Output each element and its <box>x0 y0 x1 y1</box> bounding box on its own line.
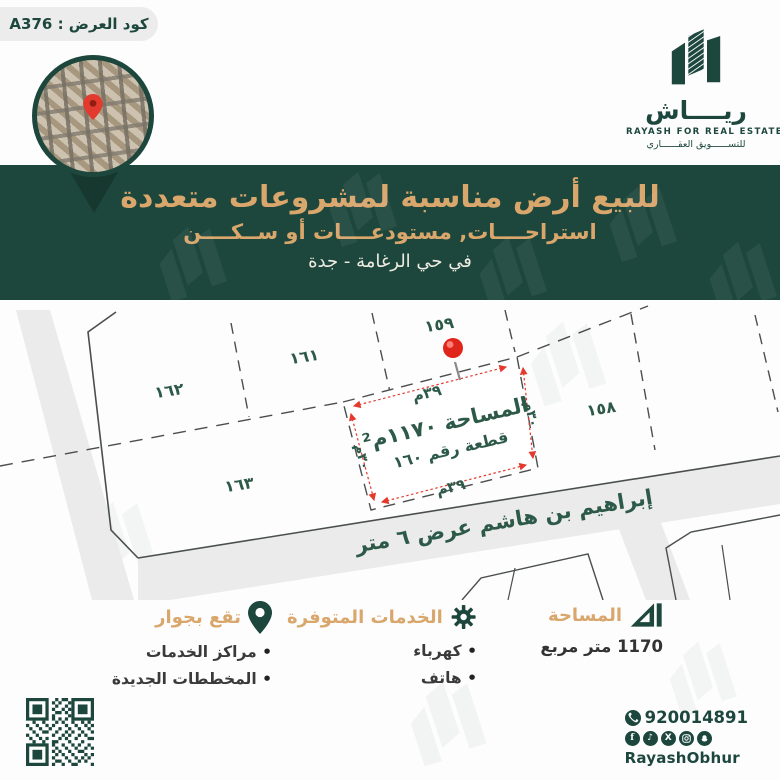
qr-code <box>26 698 94 766</box>
parcel-divider <box>372 313 390 392</box>
parcel-divider <box>231 323 249 417</box>
parcel-label-159: ١٥٩ <box>423 313 455 336</box>
phone-number: 920014891 <box>645 708 748 727</box>
banner-subtitle: استراحــــات, مستودعــــات أو ســكــــن <box>0 220 780 244</box>
parcel-label-163: ١٦٣ <box>223 473 255 496</box>
banner-location: في حي الرغامة - جدة <box>0 251 780 272</box>
area-value: 1170 متر مربع <box>483 637 663 656</box>
snapchat-icon <box>697 731 712 746</box>
parcel-label-158: ١٥٨ <box>585 397 617 420</box>
road-left <box>16 310 134 600</box>
parcel-divider <box>631 314 655 450</box>
nearby-item: المخططات الجديدة <box>82 670 272 688</box>
logo-buildings-icon <box>663 26 729 90</box>
satellite-locator <box>32 55 156 215</box>
nearby-title: تقع بجوار <box>155 607 241 628</box>
brand-tagline: للتســــــويق العقــــــاري <box>626 139 766 150</box>
parcel-map: ٣٩م ٣٩م ٣٠م ٣٠م المساحة ١١٧٠م² قطعة رقم … <box>0 300 780 600</box>
services-section: الخدمات المتوفرة كهرباء هاتف <box>287 601 477 687</box>
parcel-label-161: ١٦١ <box>288 345 320 368</box>
x-icon: X <box>661 731 676 746</box>
company-logo: ريــــاش RAYASH FOR REAL ESTATE للتســــ… <box>626 26 766 150</box>
area-title: المساحة <box>548 605 622 626</box>
gear-icon <box>450 601 477 633</box>
service-item: كهرباء <box>287 642 477 660</box>
block-below-street <box>462 554 603 600</box>
parcel-divider <box>505 310 515 352</box>
brand-english: RAYASH FOR REAL ESTATE <box>626 127 766 137</box>
nearby-section: تقع بجوار مراكز الخدمات المخططات الجديدة <box>82 601 272 688</box>
area-triangle-icon <box>629 601 663 629</box>
area-section: المساحة 1170 متر مربع <box>483 601 663 656</box>
location-pin-icon <box>248 601 272 634</box>
offer-code-text: كود العرض : A376 <box>9 15 148 33</box>
brand-arabic: ريــــاش <box>626 98 766 123</box>
contact-block: 920014891 f ♪ X RayashObhur <box>625 708 748 767</box>
service-item: هاتف <box>287 669 477 687</box>
phone-icon <box>625 710 641 726</box>
facebook-icon: f <box>625 731 640 746</box>
services-title: الخدمات المتوفرة <box>287 607 443 628</box>
instagram-icon <box>679 731 694 746</box>
satellite-image <box>32 55 154 177</box>
map-pin-icon <box>83 94 103 120</box>
nearby-item: مراكز الخدمات <box>82 643 272 661</box>
offer-code-badge: كود العرض : A376 <box>0 7 158 41</box>
social-handle: RayashObhur <box>625 749 748 767</box>
real-estate-poster: كود العرض : A376 ريــــاش RAYASH FOR REA… <box>0 0 780 780</box>
block-divider-tick <box>508 568 515 600</box>
parcel-divider <box>755 315 778 412</box>
parcel-label-162: ١٦٢ <box>153 379 185 402</box>
tiktok-icon: ♪ <box>643 731 658 746</box>
row-divider-dashed <box>517 306 648 357</box>
block-divider-tick <box>722 545 730 600</box>
